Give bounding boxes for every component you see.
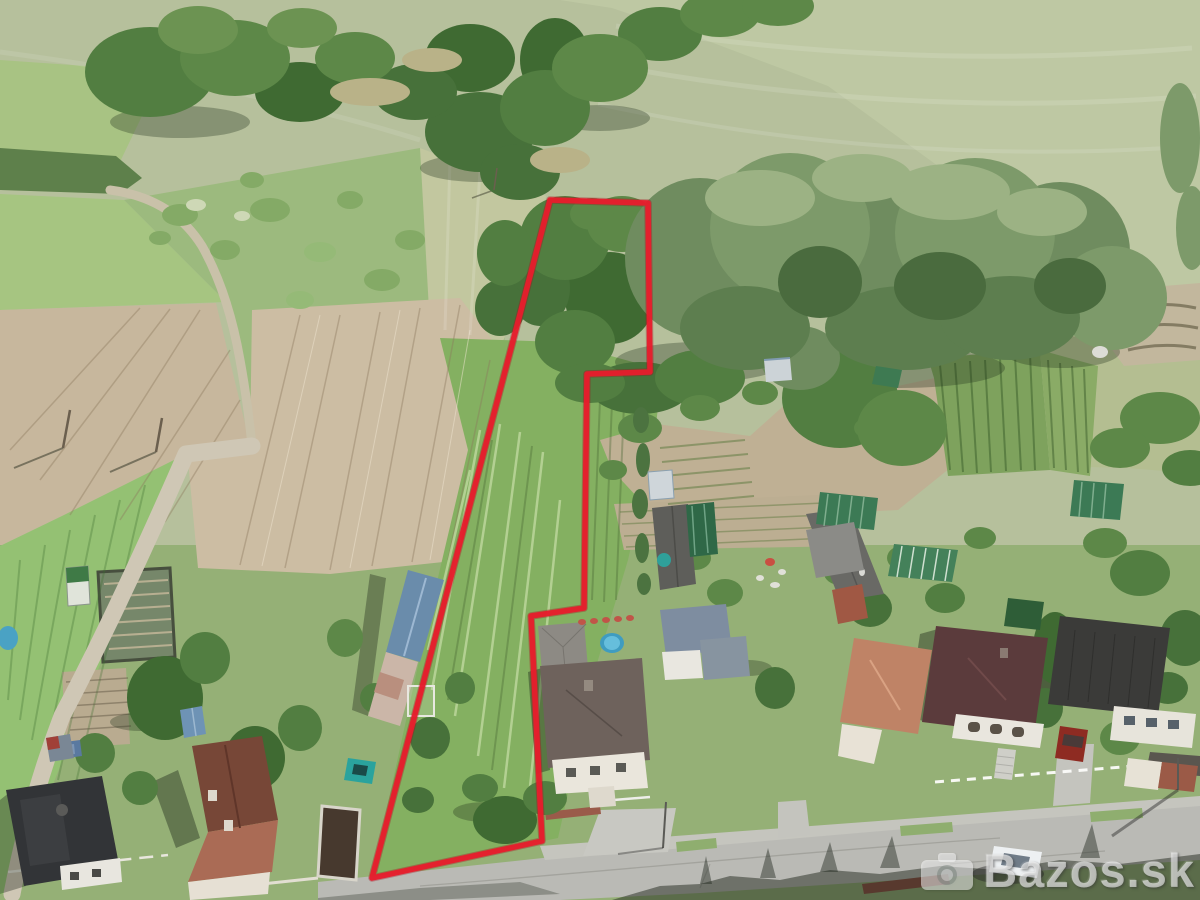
porch-arch-opening <box>990 724 1002 734</box>
courtyard-clutter <box>770 582 780 588</box>
willow-core <box>1034 258 1106 314</box>
house-window <box>616 763 626 772</box>
tree <box>1090 428 1150 468</box>
house-window <box>566 768 576 777</box>
flowering-bush <box>186 199 206 211</box>
chimney <box>208 790 217 801</box>
willow-highlight <box>812 154 912 202</box>
tree <box>680 395 720 421</box>
white-tent <box>1092 346 1108 358</box>
tree <box>599 460 627 480</box>
reed-patch <box>402 48 462 72</box>
flower-row <box>590 618 598 624</box>
garden-shed <box>764 358 792 382</box>
chimney <box>584 680 593 691</box>
courtyard-clutter <box>756 575 764 581</box>
tree <box>327 619 363 657</box>
sign-board-top <box>66 566 89 583</box>
flower-row <box>578 619 586 625</box>
courtyard-clutter <box>778 569 786 575</box>
green-shed <box>1004 598 1044 630</box>
bush <box>337 191 363 209</box>
tree <box>1083 528 1127 558</box>
bush <box>395 230 425 250</box>
tree <box>535 310 615 374</box>
tree-light <box>158 6 238 54</box>
hedge-trees <box>632 489 648 519</box>
flowering-bush <box>234 211 250 221</box>
ruin-walls <box>318 806 360 880</box>
flower-row <box>614 616 622 622</box>
tree <box>477 220 533 286</box>
tree <box>445 672 475 704</box>
tree-light <box>267 8 337 48</box>
house-wall <box>662 650 703 680</box>
porch-arch-opening <box>968 722 980 732</box>
house-window <box>1168 720 1179 729</box>
teal-car-window <box>352 764 368 776</box>
tree <box>857 390 947 466</box>
tree <box>742 381 778 405</box>
tree <box>1110 550 1170 596</box>
greenhouse-tunnel <box>1070 480 1124 520</box>
house-window <box>1146 718 1157 727</box>
patio-umbrella <box>657 553 671 567</box>
bush <box>240 172 264 188</box>
chimney <box>224 820 233 831</box>
porch-arch-opening <box>1012 727 1024 737</box>
tree <box>552 34 648 102</box>
aerial-scene <box>0 0 1200 900</box>
willow-highlight <box>997 188 1087 236</box>
chimney <box>56 804 68 816</box>
tree <box>707 579 743 607</box>
house-gable-white <box>1124 758 1162 790</box>
reed-patch <box>530 147 590 173</box>
tree <box>462 774 498 802</box>
red-gable-building <box>832 584 868 624</box>
hedge-trees <box>637 573 651 595</box>
bush-light <box>304 242 336 262</box>
bush <box>210 240 240 260</box>
house-window <box>1124 716 1135 725</box>
willow-canopy-dark <box>680 276 1080 370</box>
outbuilding-gray <box>806 522 864 578</box>
house-window <box>590 766 600 775</box>
bush <box>149 231 171 245</box>
reed-patch <box>330 78 410 106</box>
house-annex <box>588 786 616 808</box>
tree <box>925 583 965 613</box>
courtyard-clutter <box>765 558 775 566</box>
tree <box>964 527 996 549</box>
willow-core <box>778 246 862 318</box>
house-window <box>92 869 101 877</box>
hedge-trees <box>633 407 649 433</box>
driveway <box>778 800 810 838</box>
garden-pool-water <box>604 636 620 650</box>
aerial-photo: Bazos.sk <box>0 0 1200 900</box>
willow-core <box>894 252 986 320</box>
hedge-trees <box>635 533 649 563</box>
bush <box>250 198 290 222</box>
house-window <box>70 872 79 880</box>
courtyard-clutter <box>765 558 775 566</box>
garden-shed <box>648 470 674 500</box>
tree <box>180 632 230 684</box>
tree <box>755 667 795 709</box>
bush <box>364 269 400 291</box>
trailer-cab <box>46 736 60 750</box>
willow-highlight <box>705 170 815 226</box>
chimney <box>1000 648 1008 658</box>
flower-row <box>626 615 634 621</box>
tree <box>122 771 158 805</box>
house-roof-wing <box>700 636 750 680</box>
tree <box>278 705 322 751</box>
bush-light <box>286 291 314 309</box>
willow-canopy <box>1160 83 1200 193</box>
tree <box>402 787 434 813</box>
flower-row <box>602 617 610 623</box>
greenhouse-tunnel <box>686 502 718 557</box>
